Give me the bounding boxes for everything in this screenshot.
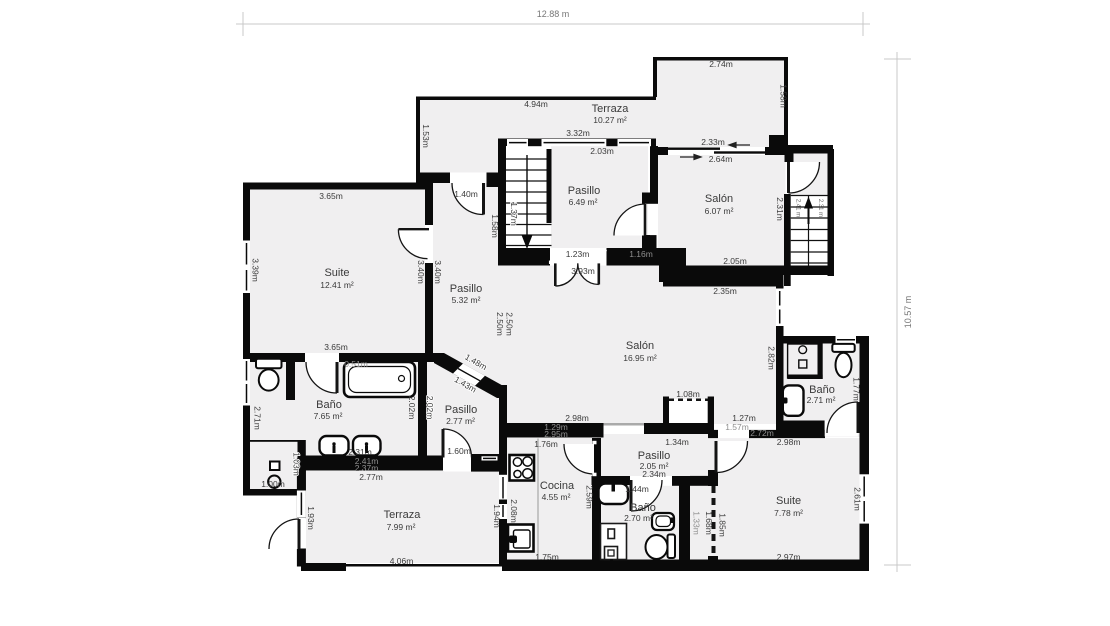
svg-text:2.64m: 2.64m (709, 154, 733, 164)
svg-text:2.71m: 2.71m (253, 406, 263, 430)
svg-text:2.77m: 2.77m (359, 472, 383, 482)
svg-text:2.02m: 2.02m (407, 396, 417, 420)
svg-text:Suite: Suite (776, 495, 801, 507)
svg-text:0.51m: 0.51m (344, 359, 368, 369)
svg-text:12.88 m: 12.88 m (537, 9, 570, 19)
svg-text:2.95m: 2.95m (544, 429, 568, 439)
svg-text:1.94m: 1.94m (492, 504, 502, 528)
svg-text:7.65 m²: 7.65 m² (314, 411, 343, 421)
svg-text:Pasillo: Pasillo (445, 404, 477, 416)
svg-text:2.02m: 2.02m (425, 396, 435, 420)
svg-text:1.03m: 1.03m (292, 452, 302, 476)
svg-text:2.98m: 2.98m (777, 437, 801, 447)
svg-text:2.31m: 2.31m (775, 197, 785, 221)
svg-text:2.71 m²: 2.71 m² (807, 395, 836, 405)
svg-text:5.32 m²: 5.32 m² (452, 295, 481, 305)
svg-text:1.75m: 1.75m (535, 552, 559, 562)
svg-text:3.40m: 3.40m (433, 260, 443, 284)
svg-text:2.08m: 2.08m (509, 499, 519, 523)
svg-text:1.57m: 1.57m (725, 422, 749, 432)
svg-text:1.44m: 1.44m (625, 484, 649, 494)
svg-text:2.97m: 2.97m (777, 552, 801, 562)
svg-text:10.27 m²: 10.27 m² (593, 115, 627, 125)
svg-text:2.98m: 2.98m (565, 413, 589, 423)
svg-text:7.78 m²: 7.78 m² (774, 508, 803, 518)
svg-text:1.58m: 1.58m (779, 84, 789, 108)
svg-text:2.31 m: 2.31 m (817, 199, 823, 217)
svg-text:Cocina: Cocina (540, 480, 575, 492)
svg-text:1.53m: 1.53m (421, 124, 431, 148)
svg-text:2.41 m: 2.41 m (795, 199, 801, 217)
svg-text:2.72m: 2.72m (750, 428, 774, 438)
svg-text:2.61m: 2.61m (853, 487, 863, 511)
svg-text:3.65m: 3.65m (319, 191, 343, 201)
svg-text:Terraza: Terraza (592, 103, 630, 115)
svg-text:2.70 m²: 2.70 m² (624, 513, 653, 523)
svg-text:Baño: Baño (316, 399, 342, 411)
svg-text:1.08m: 1.08m (676, 389, 700, 399)
svg-text:1.16m: 1.16m (629, 249, 653, 259)
svg-text:1.34m: 1.34m (665, 437, 689, 447)
svg-text:3.39m: 3.39m (251, 258, 261, 282)
svg-text:1.60m: 1.60m (447, 446, 471, 456)
svg-text:3.40m: 3.40m (416, 260, 426, 284)
svg-text:1.40m: 1.40m (454, 189, 478, 199)
svg-text:2.33m: 2.33m (701, 137, 725, 147)
svg-text:Terraza: Terraza (384, 509, 422, 521)
svg-text:1.58m: 1.58m (490, 214, 500, 238)
svg-text:4.94m: 4.94m (524, 99, 548, 109)
svg-text:1.37m: 1.37m (509, 202, 519, 226)
svg-text:2.82m: 2.82m (767, 346, 777, 370)
svg-text:2.74m: 2.74m (709, 59, 733, 69)
svg-text:1.33m: 1.33m (692, 511, 702, 535)
svg-text:7.99 m²: 7.99 m² (387, 522, 416, 532)
svg-text:1.23m: 1.23m (566, 249, 590, 259)
svg-text:2.77 m²: 2.77 m² (446, 416, 475, 426)
svg-text:2.59m: 2.59m (585, 485, 595, 509)
svg-text:6.49 m²: 6.49 m² (569, 197, 598, 207)
svg-text:1.68m: 1.68m (704, 511, 714, 535)
svg-text:Pasillo: Pasillo (568, 185, 600, 197)
svg-text:4.06m: 4.06m (390, 556, 414, 566)
svg-text:2.03m: 2.03m (590, 146, 614, 156)
svg-text:16.95 m²: 16.95 m² (623, 353, 657, 363)
svg-text:2.34m: 2.34m (642, 469, 666, 479)
svg-text:6.07 m²: 6.07 m² (705, 206, 734, 216)
svg-text:2.50m: 2.50m (495, 312, 505, 336)
svg-text:12.41 m²: 12.41 m² (320, 280, 354, 290)
svg-text:1.77m: 1.77m (852, 377, 862, 401)
svg-text:3.93m: 3.93m (571, 266, 595, 276)
svg-text:Salón: Salón (705, 193, 733, 205)
svg-text:2.35m: 2.35m (713, 286, 737, 296)
svg-text:Salón: Salón (626, 340, 654, 352)
svg-text:Pasillo: Pasillo (450, 283, 482, 295)
svg-text:Suite: Suite (324, 267, 349, 279)
svg-text:2.05m: 2.05m (723, 256, 747, 266)
svg-text:2.50m: 2.50m (505, 312, 515, 336)
svg-text:1.85m: 1.85m (718, 513, 728, 537)
svg-text:4.55 m²: 4.55 m² (542, 492, 571, 502)
svg-text:3.65m: 3.65m (324, 342, 348, 352)
svg-text:1.76m: 1.76m (534, 439, 558, 449)
svg-text:1.93m: 1.93m (306, 506, 316, 530)
svg-text:10.57 m: 10.57 m (903, 296, 913, 329)
svg-text:3.32m: 3.32m (566, 128, 590, 138)
svg-text:1.00m: 1.00m (261, 479, 285, 489)
